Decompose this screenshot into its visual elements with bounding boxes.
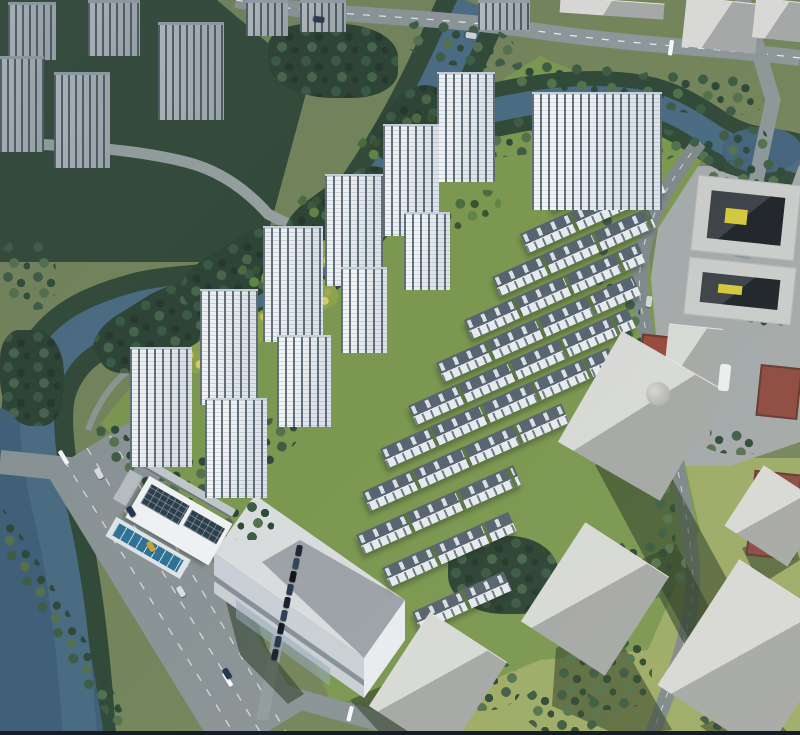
tree-grove (524, 688, 600, 734)
courtyard-block (690, 175, 800, 261)
courtyard-block (683, 257, 796, 326)
residential-tower (404, 212, 450, 290)
residential-tower (205, 398, 267, 498)
context-tower (8, 2, 56, 60)
tree-grove (0, 330, 64, 426)
context-tower (246, 0, 288, 36)
context-tower (88, 0, 140, 56)
context-massing-block (752, 0, 800, 43)
inner-courtyard (707, 190, 786, 245)
courtyard-accent (725, 208, 749, 225)
aerial-masterplan-render (0, 0, 800, 735)
residential-tower (532, 92, 662, 210)
courtyard-accent (718, 284, 742, 295)
residential-tower (263, 226, 323, 342)
image-border (0, 731, 800, 735)
context-tower (478, 0, 530, 30)
car (313, 16, 325, 23)
context-tower (0, 56, 44, 152)
cylindrical-block (646, 382, 670, 406)
residential-tower (200, 289, 258, 405)
context-tower (158, 22, 224, 120)
context-massing-block (682, 0, 761, 54)
residential-tower (437, 72, 495, 182)
residential-tower (130, 347, 192, 467)
sports-court (755, 364, 800, 420)
tree-grove (0, 240, 56, 310)
inner-courtyard (700, 272, 781, 310)
residential-tower (341, 267, 387, 353)
residential-tower (277, 335, 331, 427)
solar-panel (183, 510, 225, 545)
context-tower (54, 72, 110, 168)
